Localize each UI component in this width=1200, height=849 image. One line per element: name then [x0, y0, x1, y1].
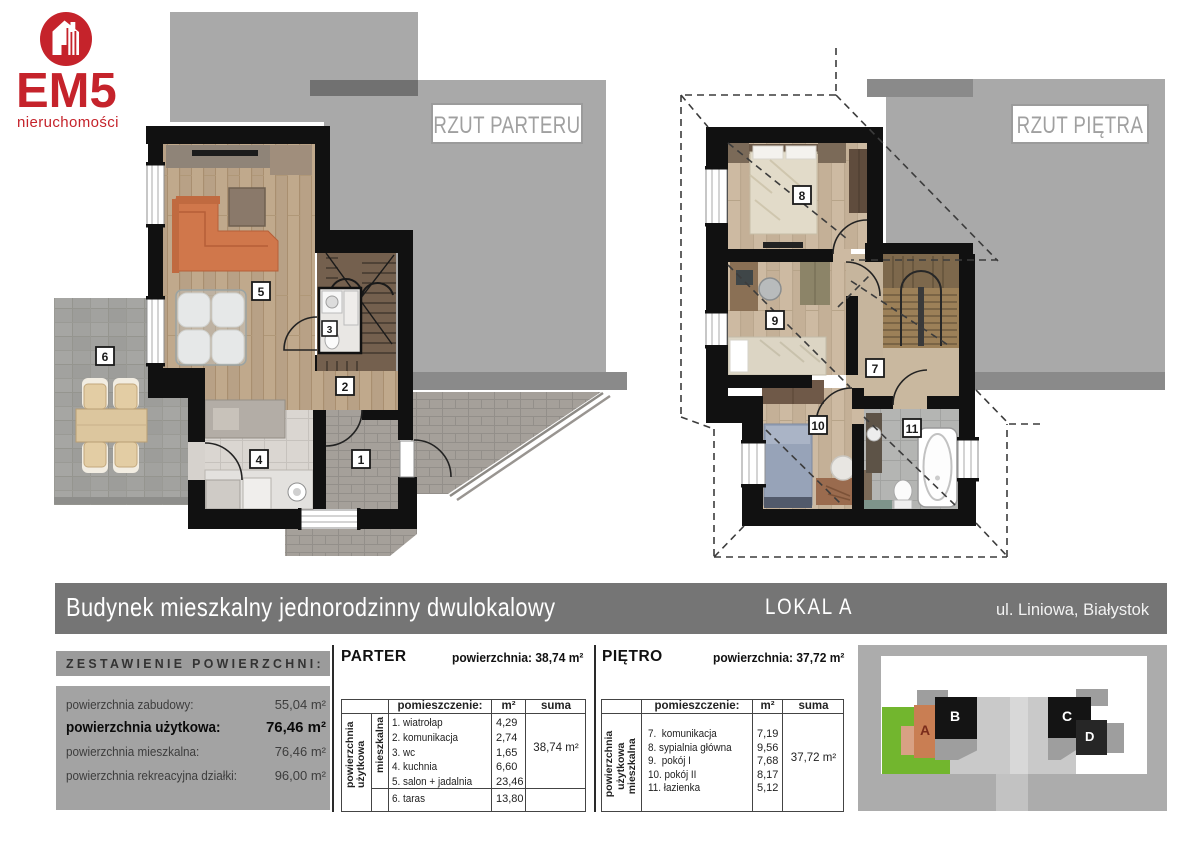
svg-text:2: 2 [342, 380, 349, 394]
svg-text:11: 11 [906, 422, 919, 436]
svg-text:7: 7 [872, 362, 879, 376]
svg-text:10: 10 [811, 419, 825, 433]
svg-text:RZUT PARTERU: RZUT PARTERU [433, 112, 580, 139]
svg-text:1: 1 [358, 453, 365, 467]
svg-text:5: 5 [258, 285, 265, 299]
svg-text:RZUT PIĘTRA: RZUT PIĘTRA [1017, 112, 1144, 139]
svg-text:3: 3 [327, 325, 333, 336]
svg-text:4: 4 [256, 453, 263, 467]
svg-text:8: 8 [799, 189, 806, 203]
svg-text:9: 9 [772, 314, 779, 328]
svg-text:6: 6 [102, 350, 109, 364]
